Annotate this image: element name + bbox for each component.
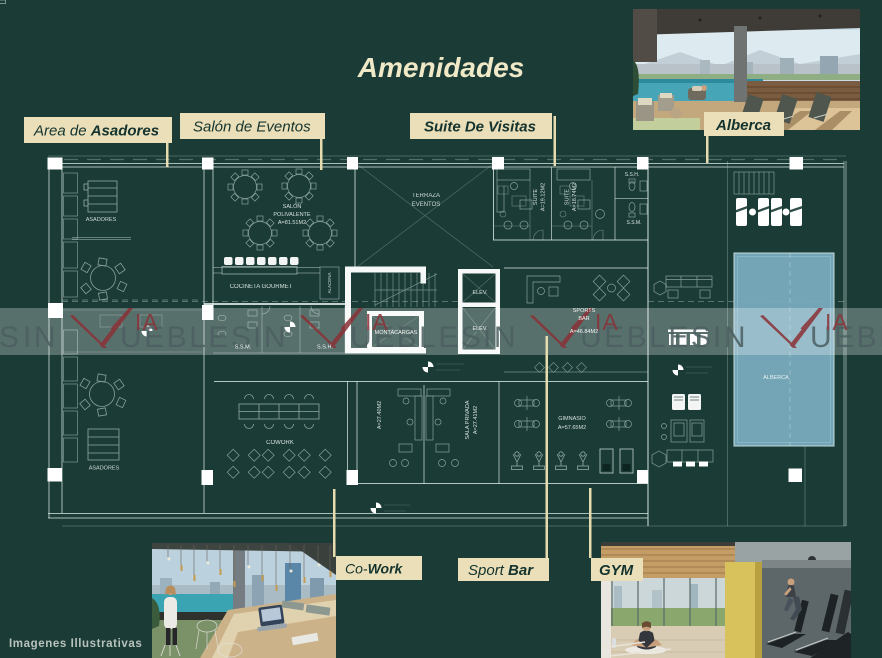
- svg-text:COCINETA GOURMET: COCINETA GOURMET: [230, 284, 293, 290]
- svg-text:TERRAZA: TERRAZA: [412, 193, 440, 199]
- svg-text:A=19.12M2: A=19.12M2: [541, 183, 547, 211]
- svg-text:Imagenes Illustrativas: Imagenes Illustrativas: [9, 638, 142, 650]
- svg-text:Salón de Eventos: Salón de Eventos: [193, 119, 311, 136]
- svg-text:SALA PRIVADA: SALA PRIVADA: [465, 400, 471, 439]
- svg-text:Suite De Visitas: Suite De Visitas: [424, 119, 536, 136]
- svg-text:SUITE: SUITE: [533, 189, 539, 206]
- svg-text:ALACENA: ALACENA: [327, 272, 332, 293]
- svg-text:S.S.M.: S.S.M.: [626, 220, 641, 226]
- svg-text:ELEV.: ELEV.: [472, 290, 488, 296]
- svg-text:EVENTOS: EVENTOS: [412, 202, 441, 208]
- svg-text:S.S.M.: S.S.M.: [235, 345, 252, 351]
- svg-text:Area de Asadores: Area de Asadores: [33, 123, 159, 140]
- svg-text:S.S.H.: S.S.H.: [625, 172, 639, 178]
- svg-text:Co-Work: Co-Work: [345, 561, 404, 577]
- svg-text:GIMNASIO: GIMNASIO: [558, 416, 586, 422]
- svg-text:A=81.51M2: A=81.51M2: [278, 220, 306, 226]
- svg-text:A=18.74M2: A=18.74M2: [572, 183, 578, 211]
- svg-text:SPORTS: SPORTS: [573, 308, 596, 314]
- svg-text:ELEV.: ELEV.: [472, 326, 488, 332]
- svg-text:COWORK: COWORK: [266, 440, 294, 446]
- svg-text:A=27.41M2: A=27.41M2: [473, 406, 479, 434]
- svg-text:SUITE: SUITE: [565, 189, 571, 206]
- svg-text:A=27.40M2: A=27.40M2: [377, 401, 383, 429]
- svg-text:MONTACARGAS: MONTACARGAS: [375, 330, 418, 336]
- svg-text:BAR: BAR: [578, 316, 589, 322]
- svg-text:GYM: GYM: [599, 562, 634, 579]
- svg-text:A=57.65M2: A=57.65M2: [558, 425, 586, 431]
- svg-text:POLIVALENTE: POLIVALENTE: [273, 212, 311, 218]
- svg-text:Sport Bar: Sport Bar: [468, 562, 534, 579]
- svg-text:ASADORES: ASADORES: [89, 466, 120, 472]
- svg-text:ASADORES: ASADORES: [86, 217, 117, 223]
- svg-text:Alberca: Alberca: [715, 117, 771, 134]
- svg-text:S.S.H.: S.S.H.: [317, 345, 333, 351]
- svg-text:ALBERCA: ALBERCA: [763, 375, 789, 381]
- svg-text:S: S: [0, 321, 22, 354]
- svg-text:Amenidades: Amenidades: [357, 52, 525, 83]
- svg-text:A=46.84M2: A=46.84M2: [570, 329, 598, 335]
- svg-text:SALÓN: SALÓN: [283, 203, 302, 210]
